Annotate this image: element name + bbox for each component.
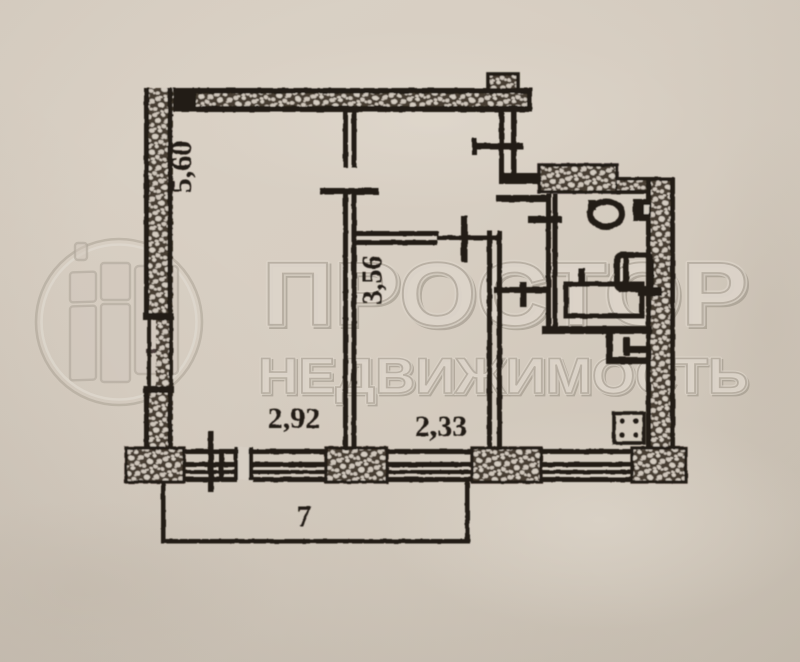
svg-text:7: 7 (297, 500, 312, 533)
svg-text:3,56: 3,56 (357, 256, 388, 305)
svg-text:ПРОСТОР: ПРОСТОР (262, 245, 748, 345)
svg-text:2,33: 2,33 (415, 410, 468, 443)
svg-text:2,92: 2,92 (268, 402, 321, 435)
svg-text:5,60: 5,60 (165, 141, 198, 194)
